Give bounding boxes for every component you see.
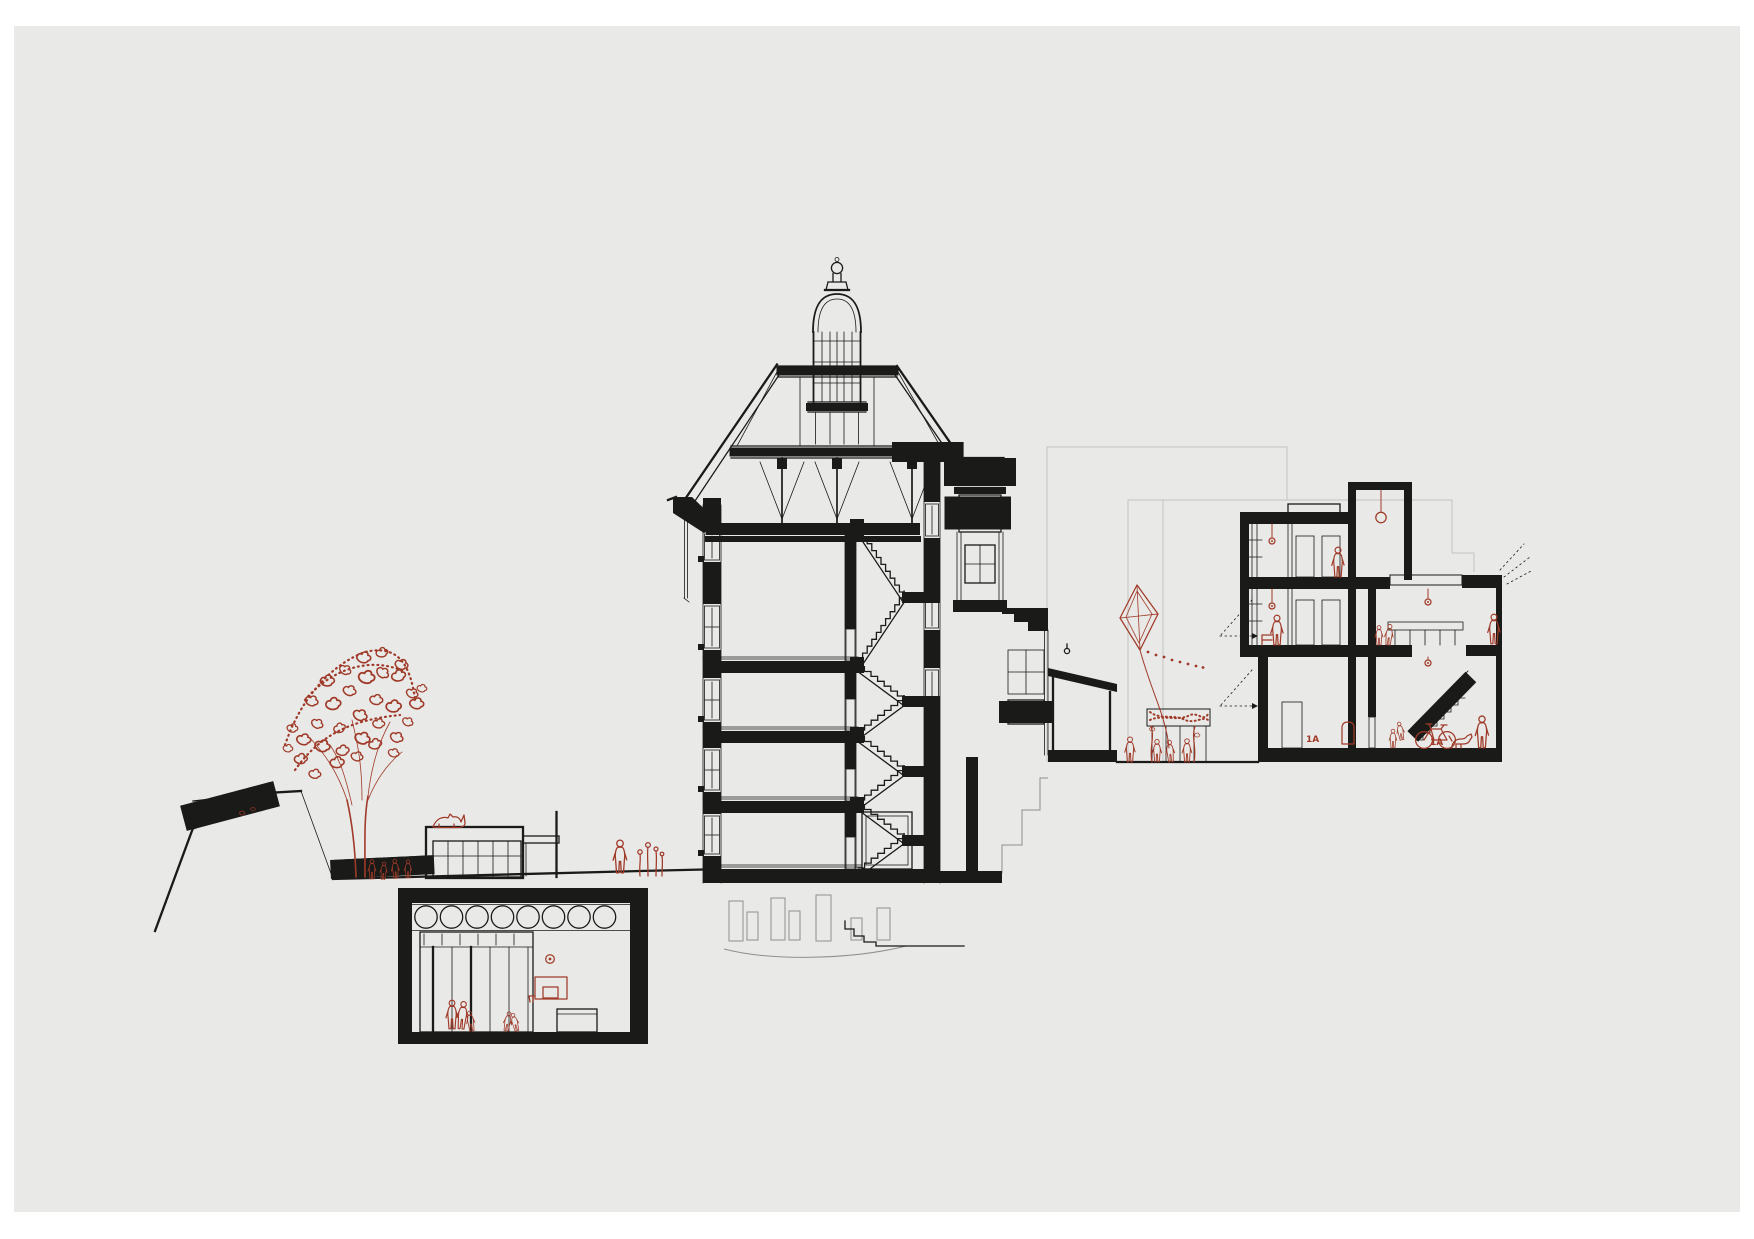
architectural-section-drawing: 1A 1A — [0, 0, 1754, 1239]
room-label-ground-right: 1A — [1430, 738, 1443, 748]
paper — [14, 26, 1740, 1212]
ramp-railing-hatch — [196, 797, 264, 815]
room-label-ground-left: 1A — [1306, 735, 1319, 745]
drawing-sheet: 1A 1A — [0, 0, 1754, 1239]
